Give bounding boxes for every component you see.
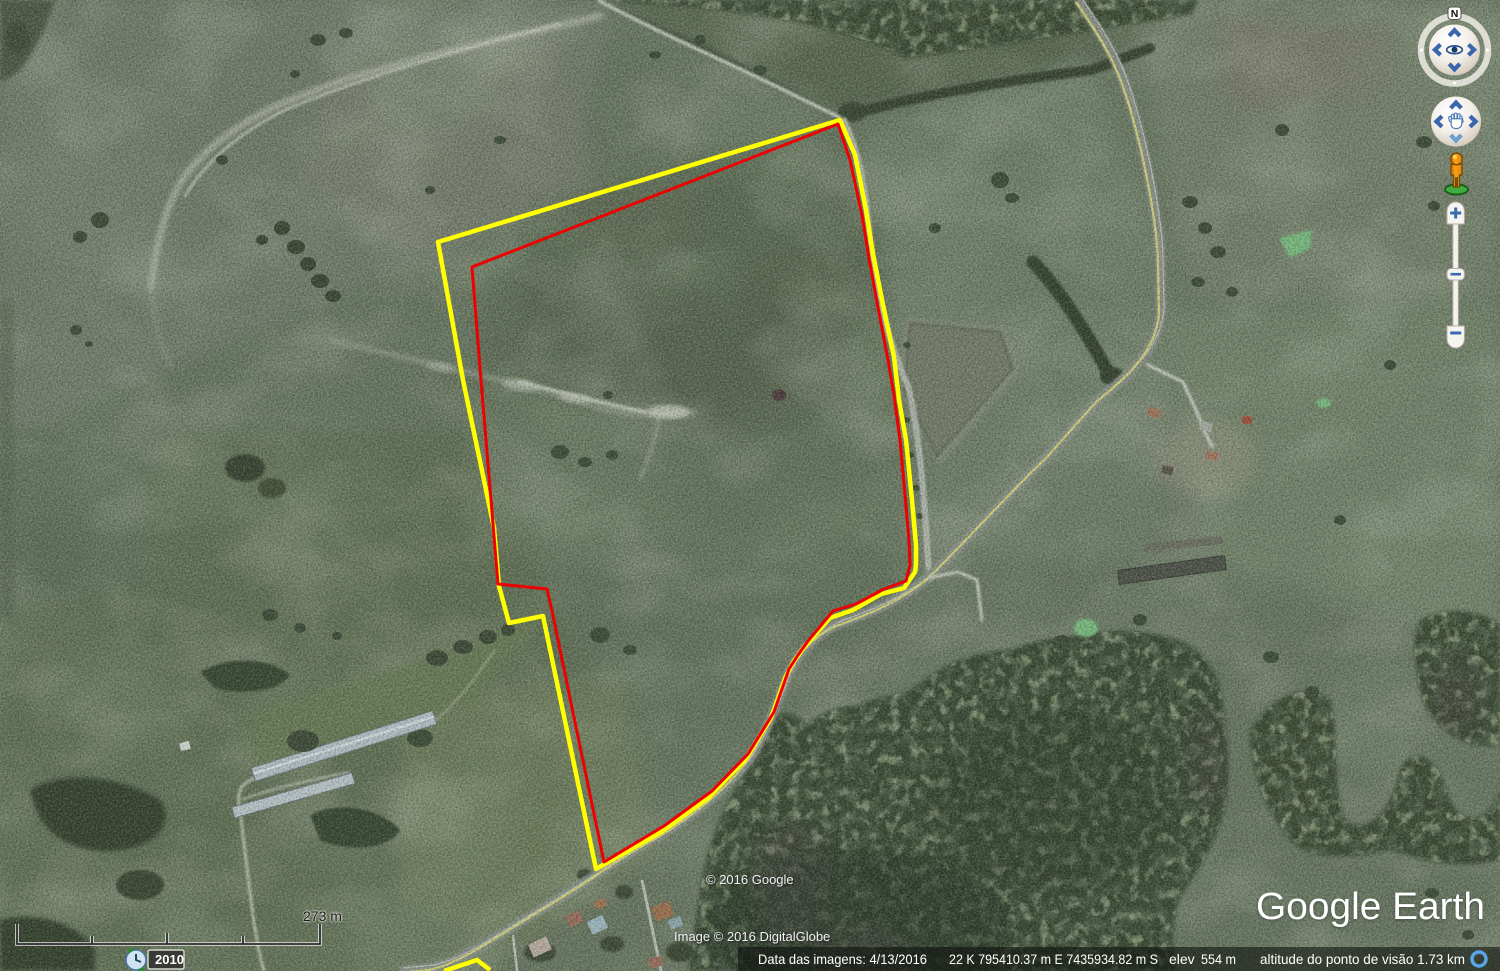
svg-text:2010: 2010: [155, 952, 184, 967]
svg-text:© 2016 Google: © 2016 Google: [706, 872, 794, 887]
svg-text:N: N: [1451, 8, 1459, 20]
svg-text:altitude do ponto de visão 1: altitude do ponto de visão 1.73 km: [1260, 951, 1465, 967]
svg-text:273 m: 273 m: [303, 908, 342, 924]
svg-text:554 m: 554 m: [1201, 951, 1236, 967]
svg-text:elev: elev: [1169, 951, 1195, 967]
svg-text:22 K 795410.37 m E 7435934.82: 22 K 795410.37 m E 7435934.82 m S: [949, 951, 1158, 967]
svg-text:Google Earth: Google Earth: [1256, 886, 1485, 928]
svg-text:Image © 2016 DigitalGlobe: Image © 2016 DigitalGlobe: [674, 929, 830, 944]
svg-text:Data das imagens: 4/13/2016: Data das imagens: 4/13/2016: [758, 951, 927, 967]
